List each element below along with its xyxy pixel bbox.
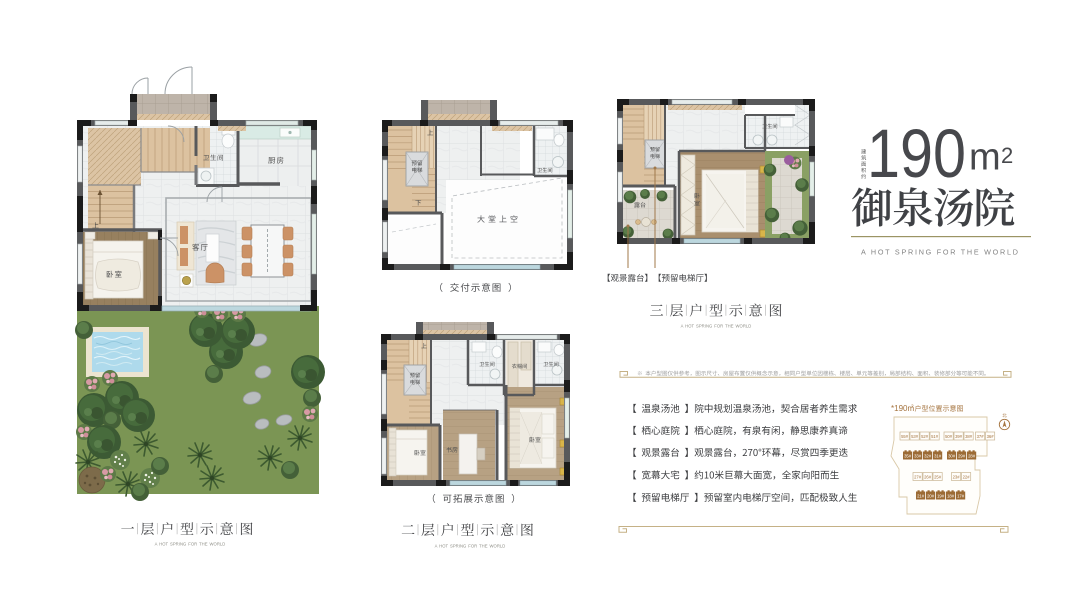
svg-text:30#: 30# xyxy=(948,453,956,458)
svg-text:33#: 33# xyxy=(914,453,922,458)
svg-text:20#: 20# xyxy=(927,493,935,498)
svg-text:A HOT SPRING FOR THE WORLD: A HOT SPRING FOR THE WORLD xyxy=(861,248,1020,257)
svg-text:35#: 35# xyxy=(904,453,912,458)
svg-text:23#: 23# xyxy=(953,474,961,479)
svg-text:m: m xyxy=(969,137,1001,179)
svg-text:52#: 52# xyxy=(921,434,929,439)
svg-text:A HOT SPRING FOR THE WORLD: A HOT SPRING FOR THE WORLD xyxy=(155,542,226,547)
svg-text:21#: 21# xyxy=(917,493,925,498)
svg-text:A HOT SPRING FOR THE WORLD: A HOT SPRING FOR THE WORLD xyxy=(681,324,752,329)
svg-text:31#: 31# xyxy=(934,453,942,458)
svg-text:17#: 17# xyxy=(957,493,965,498)
svg-text:27#: 27# xyxy=(914,474,922,479)
svg-text:2: 2 xyxy=(1001,143,1013,168)
svg-text:37#: 37# xyxy=(977,434,985,439)
svg-text:55#: 55# xyxy=(901,434,909,439)
svg-text:190: 190 xyxy=(867,115,966,192)
svg-text:28#: 28# xyxy=(968,453,976,458)
svg-text:26#: 26# xyxy=(924,474,932,479)
svg-text:25#: 25# xyxy=(934,474,942,479)
svg-text:51#: 51# xyxy=(931,434,939,439)
svg-text:22#: 22# xyxy=(963,474,971,479)
svg-text:29#: 29# xyxy=(958,453,966,458)
svg-text:50#: 50# xyxy=(945,434,953,439)
svg-text:36#: 36# xyxy=(987,434,995,439)
svg-text:38#: 38# xyxy=(965,434,973,439)
svg-text:53#: 53# xyxy=(911,434,919,439)
svg-text:32#: 32# xyxy=(924,453,932,458)
svg-text:19#: 19# xyxy=(937,493,945,498)
svg-text:39#: 39# xyxy=(955,434,963,439)
svg-text:18#: 18# xyxy=(947,493,955,498)
svg-text:A HOT SPRING FOR THE WORLD: A HOT SPRING FOR THE WORLD xyxy=(435,544,506,549)
svg-text:2: 2 xyxy=(911,404,914,410)
